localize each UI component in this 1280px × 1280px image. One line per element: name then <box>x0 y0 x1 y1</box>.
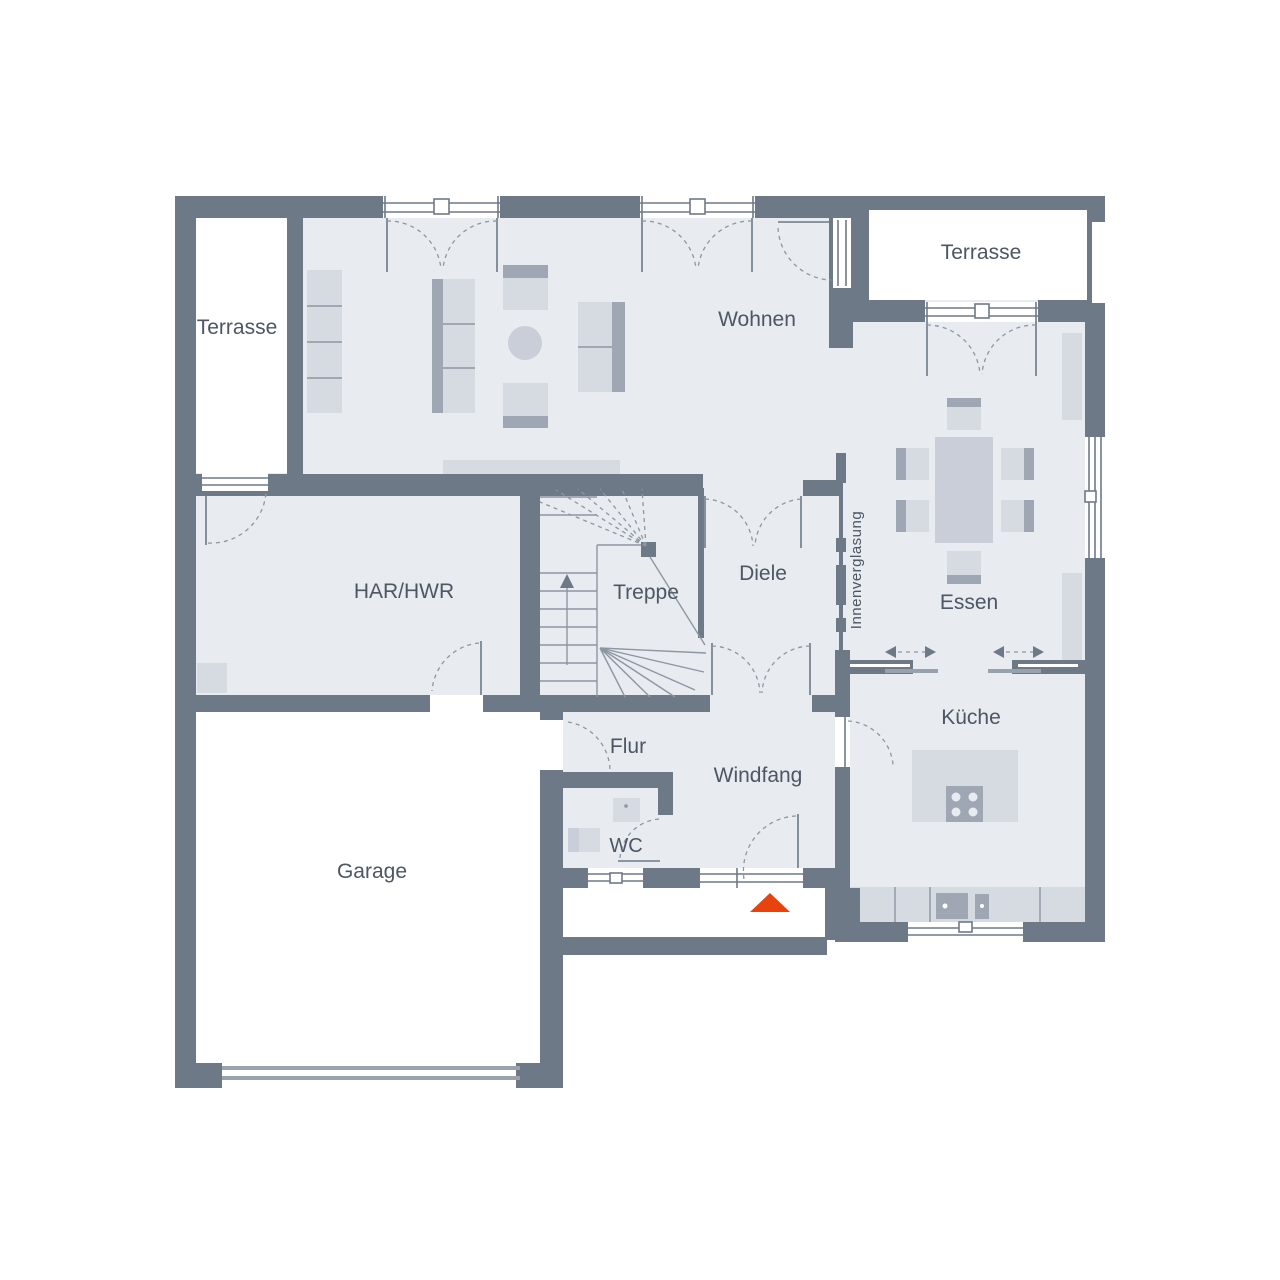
wall-essen-north-right <box>1038 300 1088 322</box>
chair-left-1-back <box>896 448 906 480</box>
wall-porch-south <box>563 937 827 955</box>
label-treppe: Treppe <box>613 581 679 604</box>
sofa-right-back <box>612 302 625 392</box>
wall-flur-south <box>549 772 660 788</box>
glazing-post-1 <box>836 453 846 483</box>
garage-area <box>196 712 540 1063</box>
appliance-knob <box>980 904 984 908</box>
terrace-right-edge <box>1087 210 1092 303</box>
label-wohnen: Wohnen <box>718 308 796 331</box>
chair-right-1-back <box>1024 448 1034 480</box>
door-pivot-box <box>434 199 449 214</box>
wall-right-main <box>1085 303 1105 940</box>
floorplan-page: Terrasse Terrasse Wohnen HAR/HWR Treppe … <box>0 0 1280 1280</box>
label-windfang: Windfang <box>714 764 803 787</box>
glazing-post-3 <box>836 565 846 605</box>
dining-table <box>935 437 993 543</box>
sofa-left-seat <box>443 279 475 413</box>
label-garage: Garage <box>337 860 407 883</box>
armchair-bottom-back <box>503 416 548 428</box>
label-terrasse-left: Terrasse <box>197 316 278 339</box>
chair-top-back <box>947 398 981 407</box>
washbasin <box>613 798 640 822</box>
wall-terrasse-left-inner <box>287 196 303 490</box>
wall-treppe-east-thin <box>698 488 704 638</box>
glazing-connector <box>823 482 835 496</box>
slider-panel-right <box>988 669 1041 673</box>
armchair-top-seat <box>503 278 548 310</box>
door-pivot-box <box>690 199 705 214</box>
sofa-left-back <box>432 279 443 413</box>
burner-3 <box>952 808 961 817</box>
label-har-hwr: HAR/HWR <box>354 580 454 603</box>
chair-bottom-back <box>947 575 981 584</box>
label-wc: WC <box>609 835 642 857</box>
floor-entry-zone <box>540 695 835 888</box>
label-innenverglasung: Innenverglasung <box>848 511 865 629</box>
wc-window <box>588 868 643 888</box>
wall-har-east <box>520 474 540 712</box>
garage-pier-right <box>516 1063 563 1088</box>
burner-1 <box>952 793 961 802</box>
sideboard-lower <box>1062 573 1082 673</box>
label-kueche: Küche <box>941 706 1001 729</box>
wall-garage-north <box>175 695 563 712</box>
sink <box>936 893 968 919</box>
kueche-window <box>908 922 1023 942</box>
cooktop <box>946 786 983 822</box>
armchair-top-back <box>503 265 548 278</box>
wall-wc-east <box>658 772 673 815</box>
garage-door <box>222 1066 520 1080</box>
wall-windfang-south-stub <box>803 868 835 888</box>
wall-left <box>175 196 196 1088</box>
label-flur: Flur <box>610 735 646 758</box>
coffee-table <box>508 326 542 360</box>
garage-pier-left <box>175 1063 222 1088</box>
slider-slot-right <box>1018 664 1078 667</box>
window-handle <box>1085 491 1096 502</box>
wall-essen-north-left <box>853 300 925 322</box>
label-diele: Diele <box>739 562 787 585</box>
slider-slot-left <box>850 664 910 667</box>
glazing-post-4 <box>836 618 846 632</box>
floorplan-drawing: Terrasse Terrasse Wohnen HAR/HWR Treppe … <box>0 0 1280 1280</box>
sink-tap <box>943 904 948 909</box>
chair-left-2-back <box>896 500 906 532</box>
wall-top-terrace <box>853 196 1105 210</box>
label-terrasse-right: Terrasse <box>941 241 1022 264</box>
label-essen: Essen <box>940 591 998 614</box>
window-handle <box>959 922 972 932</box>
slider-panel-left <box>885 669 938 673</box>
terrasse-left-area <box>196 218 287 473</box>
sideboard-upper <box>1062 333 1082 420</box>
washbasin-tap <box>624 804 628 808</box>
terrace-right-pier-left <box>853 210 869 303</box>
wall-diele-north-stub <box>803 480 841 496</box>
burner-4 <box>969 808 978 817</box>
burner-2 <box>969 793 978 802</box>
window-handle <box>610 873 622 883</box>
essen-window <box>1085 437 1105 558</box>
hwr-unit <box>197 663 227 693</box>
glazing-post-2 <box>836 538 846 552</box>
toilet-cistern <box>568 828 579 852</box>
door-pivot-box <box>975 304 989 318</box>
chair-right-2-back <box>1024 500 1034 532</box>
wall-diele-south-stub <box>812 695 838 712</box>
armchair-bottom-seat <box>503 383 548 416</box>
